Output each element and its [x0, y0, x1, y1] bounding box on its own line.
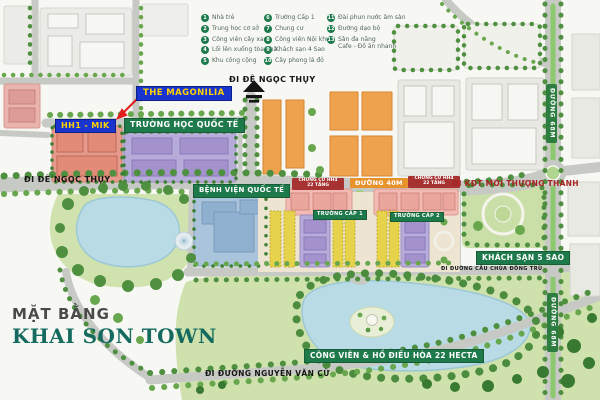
- legend-item: 10Cây phong lá đỏ: [264, 57, 330, 65]
- legend-item: 6Trường Cấp 1: [264, 14, 330, 22]
- legend-item: 7Chung cư: [264, 25, 330, 33]
- road-label-cau-chua: ĐI ĐƯỜNG CẦU CHÙA ĐÔNG TRÙ: [441, 267, 542, 273]
- hotel-5-star-label: KHÁCH SẠN 5 SAO: [476, 251, 570, 265]
- hospital-label: BỆNH VIỆN QUỐC TẾ: [193, 184, 290, 198]
- plan-title: MẶT BẰNG KHAI SON TOWN: [12, 305, 217, 348]
- duong-68m-label-bottom: ĐƯỜNG 68M: [547, 293, 558, 352]
- legend-number: 8: [264, 36, 272, 44]
- legend-number: 11: [327, 14, 335, 22]
- plan-title-line1: MẶT BẰNG: [12, 305, 217, 323]
- the-magonilia-label: THE MAGONILIA: [136, 86, 232, 101]
- school-1-label: TRƯỜNG CẤP 1: [313, 210, 367, 220]
- road-label-nguyen-van-cu: ĐI ĐƯỜNG NGUYỄN VĂN CỪ: [205, 370, 330, 378]
- duong-68m-label-top: ĐƯỜNG 68M: [546, 84, 557, 143]
- legend-number: 7: [264, 25, 272, 33]
- school-cluster-1: [300, 215, 330, 267]
- school-cluster-2: [401, 215, 429, 267]
- park-lake-label: CÔNG VIÊN & HỒ ĐIỀU HÒA 22 HECTA: [304, 349, 484, 363]
- school-2-label: TRƯỜNG CẤP 2: [390, 212, 444, 222]
- legend-number: 12: [327, 25, 335, 33]
- legend-number: 4: [201, 46, 209, 54]
- legend-column-3: 11Đài phun nước âm sàn 12Đường dạo bộ 13…: [327, 14, 406, 53]
- legend-number: 3: [201, 36, 209, 44]
- hh1-mik-label: HH1 - MIK: [55, 119, 116, 133]
- west-lake: [77, 197, 180, 267]
- road-label-ngoc-thuy-top: ĐI ĐÊ NGỌC THỤY: [229, 76, 316, 85]
- road-label-ngoc-thuy-left: ĐI ĐÊ NGỌC THỤY: [24, 176, 111, 185]
- legend-item: 13 Sân đa năng Cafe - Đồ ăn nhanh: [327, 36, 406, 50]
- plan-title-line2: KHAI SON TOWN: [12, 324, 217, 348]
- fountain-plaza: [175, 232, 193, 250]
- legend-number: 2: [201, 25, 209, 33]
- legend-item: 11Đài phun nước âm sàn: [327, 14, 406, 22]
- legend-item: 12Đường dạo bộ: [327, 25, 406, 33]
- legend-item: 9Khách sạn 4 Sao: [264, 46, 330, 54]
- legend-number: 1: [201, 14, 209, 22]
- duong-40m-label: ĐƯỜNG 40M: [350, 178, 408, 188]
- legend-number: 5: [201, 57, 209, 65]
- road-label-thuong-thanh: ĐI KĐT MỚI THƯỢNG THANH: [452, 180, 579, 188]
- masterplan-page: 1Nhà trẻ 2Trung học cơ sở 3Công viên cây…: [0, 0, 600, 400]
- international-school-label: TRƯỜNG HỌC QUỐC TẾ: [124, 118, 245, 133]
- legend-number: 9: [264, 46, 272, 54]
- legend-column-2: 6Trường Cấp 1 7Chung cư 8Công viên Nội k…: [264, 14, 330, 68]
- legend-item: 8Công viên Nội khu: [264, 36, 330, 44]
- legend-number: 10: [264, 57, 272, 65]
- legend-number: 6: [264, 14, 272, 22]
- hh4-condo-label-west: CHUNG CƯ HH4 22 TẦNG: [292, 178, 344, 190]
- legend-number: 13: [327, 36, 335, 44]
